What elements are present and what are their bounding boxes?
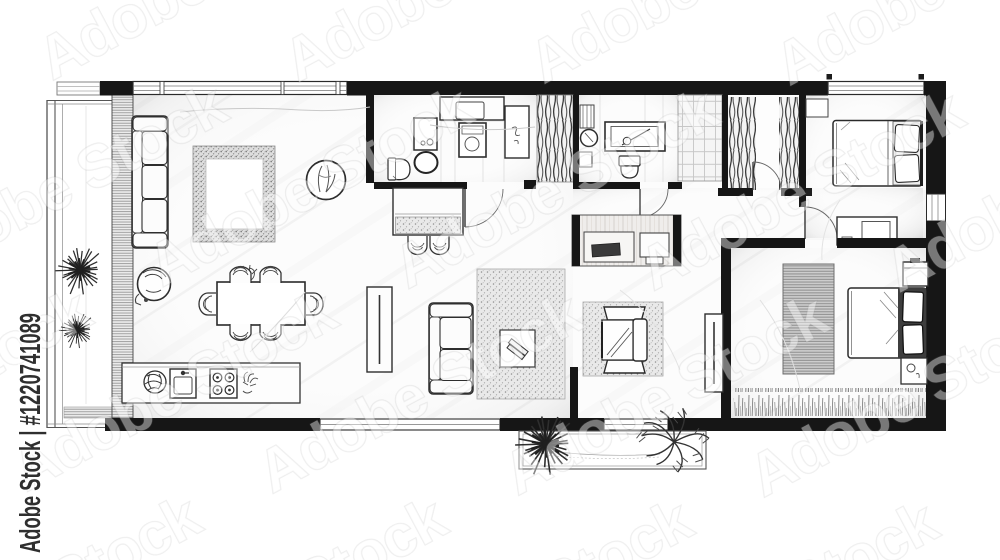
svg-text:Adobe Stock | #1220741089: Adobe Stock | #1220741089 [15,313,47,553]
